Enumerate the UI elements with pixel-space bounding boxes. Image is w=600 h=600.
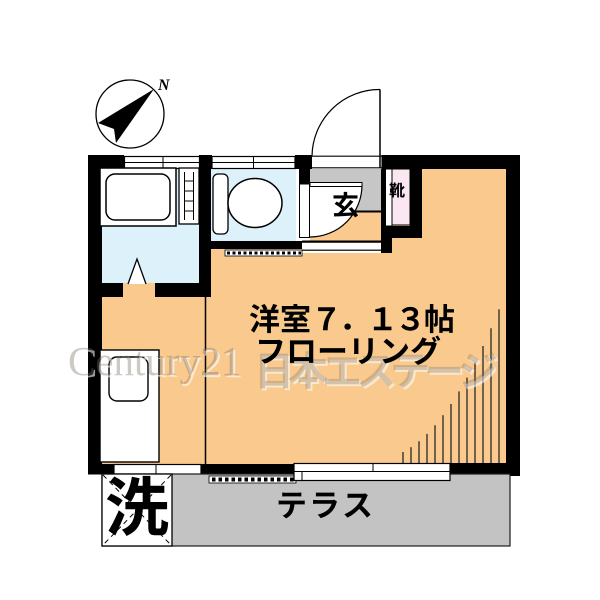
svg-text:N: N (157, 77, 171, 94)
svg-text:Century21: Century21 (68, 338, 241, 384)
